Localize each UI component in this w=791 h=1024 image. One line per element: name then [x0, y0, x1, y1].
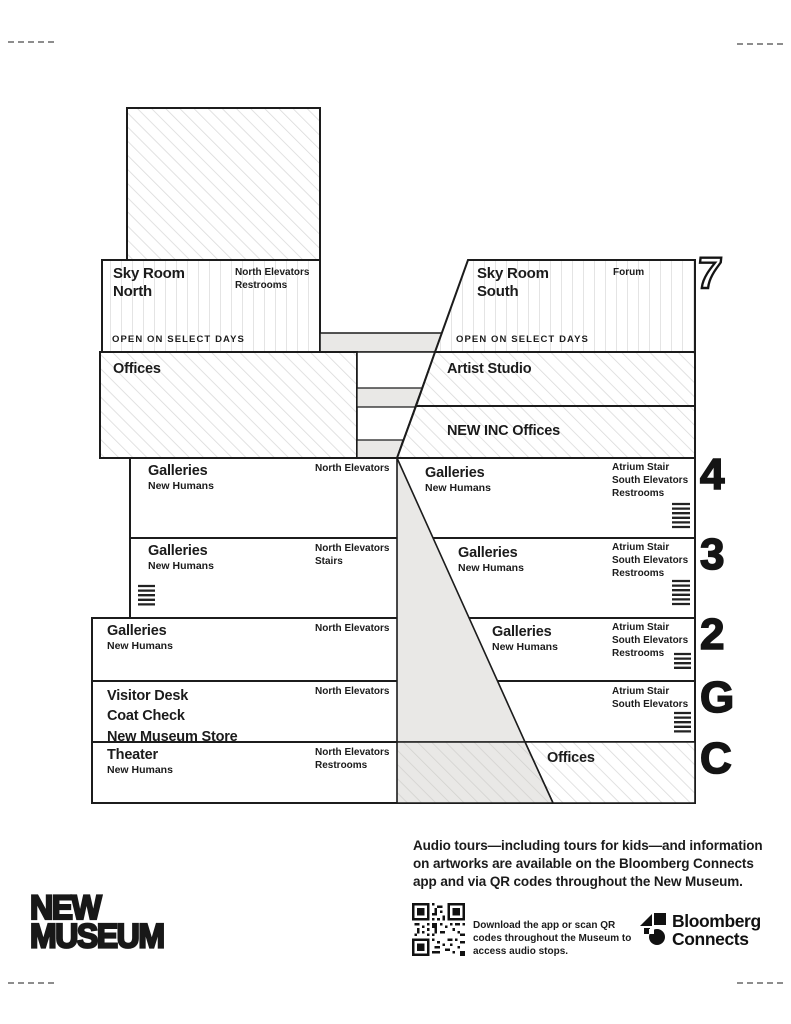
floor3-left-sub: New Humans: [148, 560, 214, 573]
artist-studio-label: Artist Studio: [447, 361, 531, 378]
stair-shaft-slab-lower: [357, 440, 403, 458]
atrium-wedge-cellar: [397, 742, 553, 803]
floor2-right-sub: New Humans: [492, 641, 558, 654]
floor-label-4: 4: [700, 455, 723, 495]
floor2-left-title: Galleries: [107, 623, 166, 640]
floor2-right-title: Galleries: [492, 624, 551, 641]
bloomberg-connects-wordmark: Bloomberg Connects: [672, 912, 761, 948]
ground-left-title: Visitor Desk Coat Check New Museum Store: [107, 686, 238, 747]
floor2-mid-services: North Elevators: [315, 622, 389, 635]
floor2-left-sub: New Humans: [107, 640, 173, 653]
floor4-right-title: Galleries: [425, 465, 484, 482]
roof-tower: [127, 108, 320, 262]
audio-tours-blurb: Audio tours—including tours for kids—and…: [413, 837, 791, 891]
floor4-left-title: Galleries: [148, 463, 207, 480]
floor3-left-title: Galleries: [148, 543, 207, 560]
sky-room-bridge: [320, 333, 442, 352]
floor-label-3: 3: [700, 535, 723, 575]
offices-label: Offices: [113, 361, 161, 378]
stair-shaft-slab-upper: [357, 388, 422, 407]
sky-room-north-title: Sky Room North: [113, 265, 185, 300]
ground-right-services: Atrium Stair South Elevators: [612, 685, 688, 711]
floor4-mid-services: North Elevators: [315, 462, 389, 475]
museum-map-page: Sky Room North North Elevators Restrooms…: [0, 0, 791, 1024]
cellar-left-title: Theater: [107, 747, 158, 764]
floor3-right-title: Galleries: [458, 545, 517, 562]
cellar-mid-services: North Elevators Restrooms: [315, 746, 389, 772]
floor4-right-sub: New Humans: [425, 482, 491, 495]
sky-room-south-services: Forum: [613, 266, 644, 279]
sky-room-south-note: OPEN ON SELECT DAYS: [456, 334, 589, 345]
new-museum-logo: NEW MUSEUM: [30, 893, 164, 950]
floor4-left-sub: New Humans: [148, 480, 214, 493]
qr-caption: Download the app or scan QR codes throug…: [473, 919, 643, 959]
floor-label-c: C: [700, 739, 731, 779]
bloomberg-connects-icon: [636, 913, 668, 947]
floor4-right-services: Atrium Stair South Elevators Restrooms: [612, 461, 688, 500]
cellar-right-title: Offices: [547, 750, 595, 767]
qr-code: [412, 903, 465, 956]
sky-room-north-note: OPEN ON SELECT DAYS: [112, 334, 245, 345]
new-museum-logo-line2: MUSEUM: [30, 921, 164, 949]
floor3-right-sub: New Humans: [458, 562, 524, 575]
sky-room-south-title: Sky Room South: [477, 265, 549, 300]
floor-label-g: G: [700, 678, 733, 718]
new-inc-label: NEW INC Offices: [447, 423, 560, 440]
floor2-right-services: Atrium Stair South Elevators Restrooms: [612, 621, 688, 660]
floor-label-7: 7: [695, 254, 723, 294]
ground-mid-services: North Elevators: [315, 685, 389, 698]
cellar-left-sub: New Humans: [107, 764, 173, 777]
sky-room-north-services: North Elevators Restrooms: [235, 266, 309, 292]
floor-label-2: 2: [700, 615, 723, 655]
floor2-box: [92, 618, 695, 681]
floor3-right-services: Atrium Stair South Elevators Restrooms: [612, 541, 688, 580]
floor3-mid-services: North Elevators Stairs: [315, 542, 389, 568]
